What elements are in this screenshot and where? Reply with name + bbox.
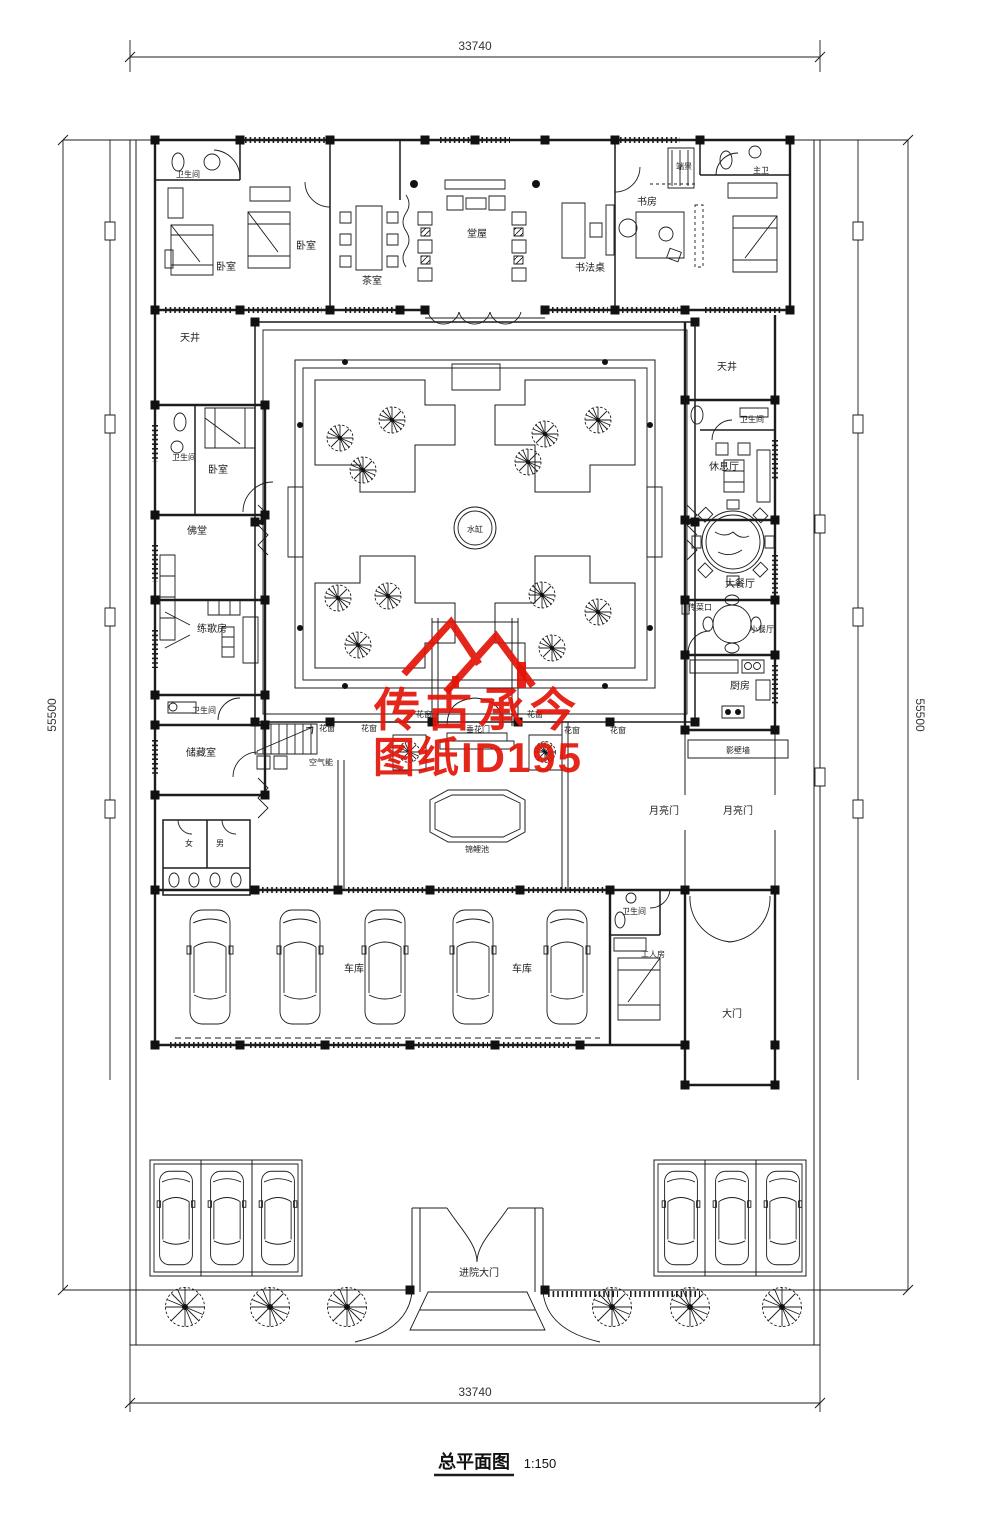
floor-plan-drawing: 33740 33740 55500 55500 <box>0 0 1000 1516</box>
men-label: 男 <box>216 839 224 848</box>
room-label-calligraphy-desk: 书法桌 <box>575 261 605 274</box>
title-block: 总平面图 1:150 <box>434 1451 556 1475</box>
bathroom-worker-label: 卫生间 <box>622 906 646 916</box>
watermark-brand: 传古承今 <box>373 684 582 736</box>
kitchen-label: 厨房 <box>730 679 750 692</box>
screen-wall-label: 影壁墙 <box>726 745 750 755</box>
watermark-sheet-id: 图纸ID195 <box>373 734 583 781</box>
watermark-roof-logo <box>404 622 533 692</box>
dim-right: 55500 <box>913 698 927 732</box>
room-label-end-view: 端景 <box>676 161 692 171</box>
worker-room-label: 工人房 <box>641 949 665 959</box>
room-label-main-hall: 堂屋 <box>467 228 487 240</box>
moon-gate-right-label: 月亮门 <box>723 804 753 817</box>
dim-bottom: 33740 <box>458 1385 492 1399</box>
drawing-title: 总平面图 <box>438 1451 510 1472</box>
storage-label: 储藏室 <box>186 746 216 759</box>
dim-left: 55500 <box>45 698 59 732</box>
front-yard: 进院大门 <box>150 1160 806 1342</box>
karaoke-room-label: 练歌房 <box>197 622 227 635</box>
bathroom-lower-left-label: 卫生间 <box>192 705 216 715</box>
dining-small-label: 小餐厅 <box>750 625 774 634</box>
dining-large-label: 大餐厅 <box>725 577 755 590</box>
main-gate-label: 大门 <box>722 1007 742 1020</box>
lightwell-right-label: 天井 <box>717 360 737 373</box>
room-label-master-bath: 主卫 <box>753 165 769 175</box>
buddhist-hall-label: 佛堂 <box>187 524 207 537</box>
site-plan-sheet: 33740 33740 55500 55500 <box>0 0 1000 1516</box>
women-label: 女 <box>185 838 193 848</box>
koi-pond-label: 锦鲤池 <box>465 844 489 854</box>
bedroom-3-label: 卧室 <box>208 463 228 476</box>
room-label-bedroom-1: 卧室 <box>216 260 236 273</box>
lightwell-left-label: 天井 <box>180 331 200 344</box>
room-label-bathroom-top-left: 卫生间 <box>176 169 200 179</box>
water-vat-label: 水缸 <box>467 524 483 534</box>
room-label-study: 书房 <box>637 195 657 208</box>
north-building: 卫生间 卧室 卧室 茶室 堂屋 书法桌 书房 端景 主卫 <box>155 140 790 324</box>
garage-2-label: 车库 <box>512 962 532 975</box>
air-heat-pump-label: 空气能 <box>309 757 333 767</box>
room-label-bedroom-2: 卧室 <box>296 239 316 252</box>
moon-gate-left-label: 月亮门 <box>649 804 679 817</box>
dim-top: 33740 <box>458 39 492 53</box>
bathroom-mid-left-label: 卫生间 <box>172 452 196 462</box>
garage-1-label: 车库 <box>344 962 364 975</box>
lounge-label: 休息厅 <box>709 460 739 473</box>
room-label-tea-room: 茶室 <box>362 274 382 287</box>
food-pass-label: 传菜口 <box>688 602 712 612</box>
drawing-scale: 1:150 <box>524 1456 557 1471</box>
bathroom-right-label: 卫生间 <box>740 414 764 424</box>
entrance-gate-label: 进院大门 <box>459 1266 499 1279</box>
